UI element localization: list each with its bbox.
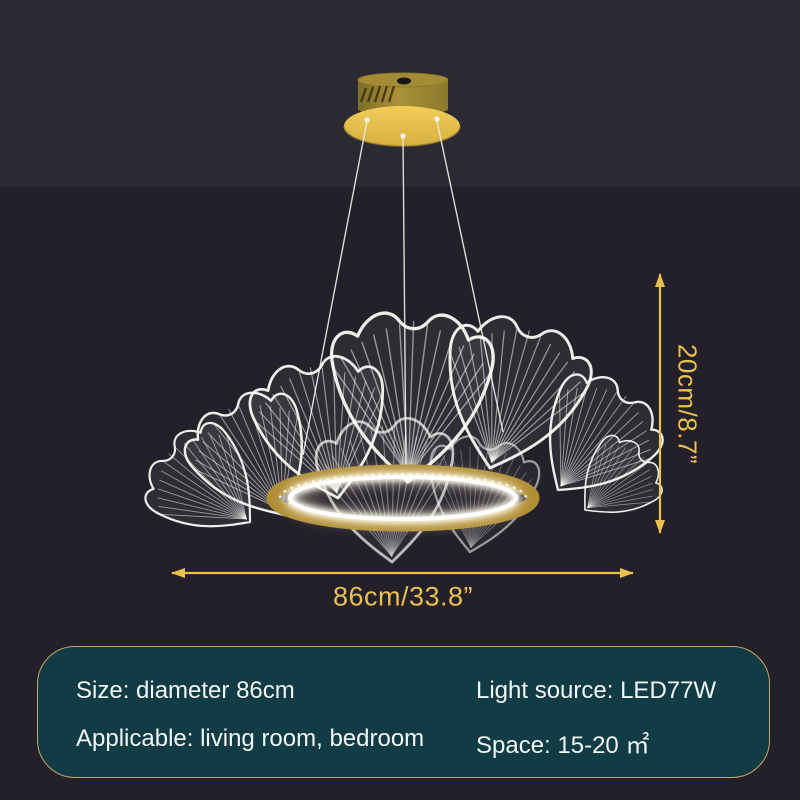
spec-applicable: Applicable: living room, bedroom: [76, 725, 424, 753]
spec-space: Space: 15-20 ㎡: [476, 725, 649, 760]
spec-size: Size: diameter 86cm: [76, 677, 295, 705]
diameter-dimension-label: 86cm/33.8”: [333, 582, 473, 613]
height-dimension-label: 20cm/8.7”: [672, 344, 703, 464]
ceiling-canopy: [344, 73, 460, 146]
spec-panel: Size: diameter 86cm Light source: LED77W…: [37, 646, 770, 778]
product-image: 20cm/8.7” 86cm/33.8” Size: diameter 86cm…: [0, 0, 800, 800]
spec-light-source: Light source: LED77W: [476, 677, 716, 705]
